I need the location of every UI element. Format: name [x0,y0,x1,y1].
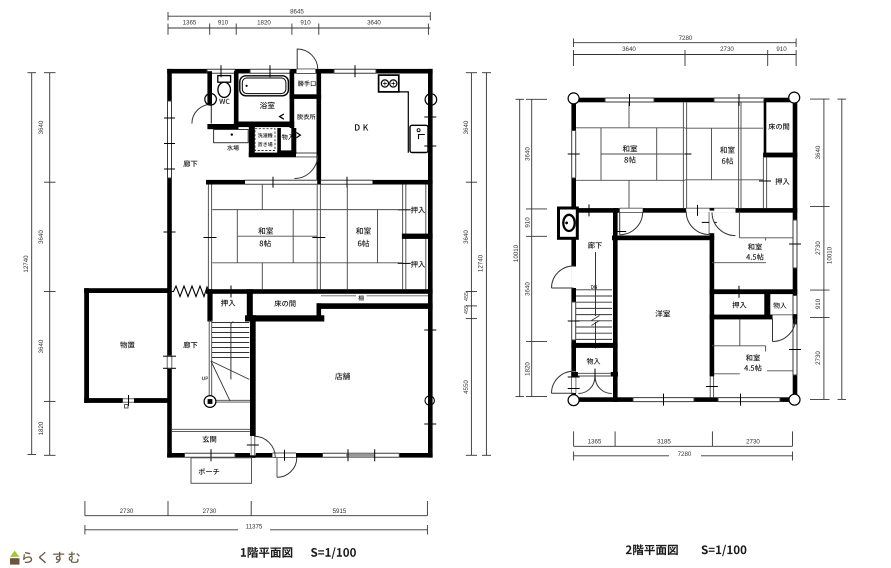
svg-text:7280: 7280 [679,35,693,42]
svg-text:3640: 3640 [38,120,45,134]
svg-text:2730: 2730 [815,351,822,365]
svg-text:2730: 2730 [815,241,822,255]
svg-text:2730: 2730 [203,508,217,515]
svg-text:910: 910 [776,46,787,53]
svg-text:3185: 3185 [657,439,671,446]
svg-text:10010: 10010 [513,244,520,262]
svg-text:910: 910 [815,298,822,309]
svg-text:3640: 3640 [38,230,45,244]
svg-text:1365: 1365 [588,439,602,446]
svg-text:1820: 1820 [38,421,45,435]
svg-text:3640: 3640 [525,282,532,296]
svg-text:3640: 3640 [367,20,381,27]
svg-text:10010: 10010 [827,246,834,264]
svg-text:4550: 4550 [463,380,470,394]
svg-text:5915: 5915 [333,508,347,515]
svg-text:3640: 3640 [38,339,45,353]
svg-text:3640: 3640 [463,230,470,244]
svg-text:12740: 12740 [23,255,30,273]
svg-text:12740: 12740 [478,254,485,272]
svg-text:7280: 7280 [678,451,692,458]
svg-text:910: 910 [218,20,229,27]
svg-text:455: 455 [464,292,470,301]
svg-text:1365: 1365 [183,20,197,27]
svg-text:2730: 2730 [720,46,734,53]
svg-text:1820: 1820 [257,20,271,27]
svg-text:1820: 1820 [525,362,532,376]
svg-text:11375: 11375 [246,524,263,531]
svg-text:455: 455 [464,305,470,314]
svg-text:3640: 3640 [463,120,470,134]
svg-text:910: 910 [525,217,532,228]
svg-text:910: 910 [300,20,311,27]
svg-text:2730: 2730 [120,508,134,515]
svg-text:3640: 3640 [622,46,636,53]
svg-text:2730: 2730 [746,439,760,446]
svg-text:3640: 3640 [815,145,822,159]
svg-text:8645: 8645 [290,8,304,15]
svg-text:3640: 3640 [525,147,532,161]
